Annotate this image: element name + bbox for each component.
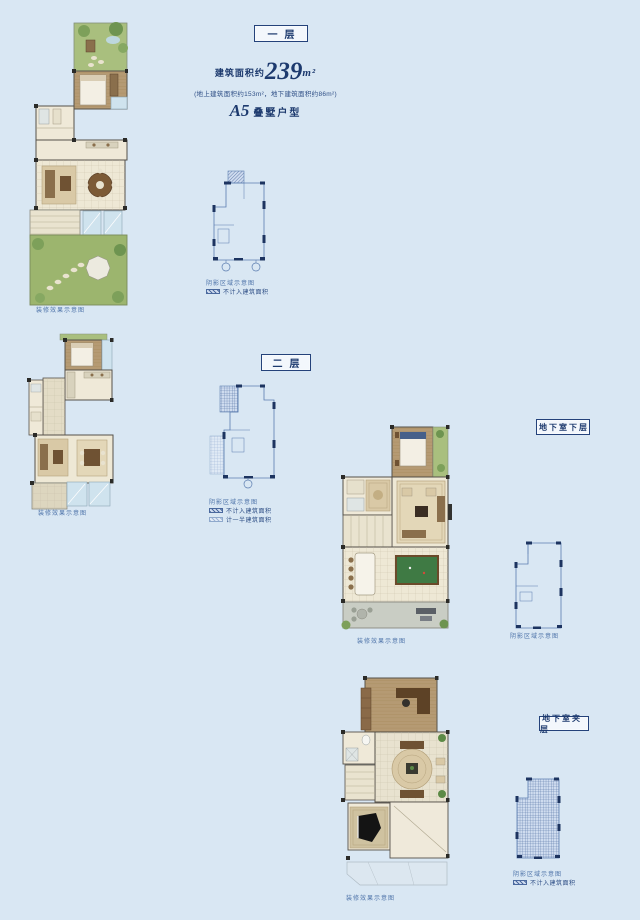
floor1-keyplan-hatch-area <box>228 171 244 183</box>
basement-mezz-keyplan <box>512 776 564 862</box>
basement-mezz-label: 地下室夹层 <box>539 716 589 731</box>
bl-garden-strip <box>433 427 448 477</box>
bm-piano-room <box>348 803 390 850</box>
basement-mezz-legend-no-count-text: 不计入建筑面积 <box>530 878 576 887</box>
unit-model: A5 <box>230 101 250 120</box>
bl-patio <box>342 602 449 630</box>
basement-lower-plan-caption: 装修效果示意图 <box>357 636 406 645</box>
floor1-garden-top <box>74 22 128 71</box>
basement-mezz-legend-no-count: 不计入建筑面积 <box>513 878 576 887</box>
bl-bar-billiards <box>343 547 448 602</box>
floor1-legend-no-count: 不计入建筑面积 <box>206 287 269 296</box>
bm-study <box>361 678 437 732</box>
floor2-plan-caption: 装修效果示意图 <box>38 508 87 517</box>
floor1-label: 一层 <box>254 25 308 42</box>
floor1-plan-caption: 装修效果示意图 <box>36 305 85 314</box>
basement-lower-keyplan-piers <box>515 542 563 630</box>
floor1-keyplan-piers <box>213 182 266 261</box>
floor2-bedroom <box>65 340 102 370</box>
brochure-page: 装修效果示意图 一层 建筑面积约239m² (地上建筑面积约153m²，地下建筑… <box>0 0 640 920</box>
floor1-keyplan <box>204 165 292 275</box>
floor2-living-dining <box>35 435 113 483</box>
floor2-keyplan-hatch-dark <box>220 386 238 412</box>
floor1-keyplan-caption: 阴影区域示意图 <box>206 278 255 287</box>
basement-lower-keyplan-caption: 阴影区域示意图 <box>510 631 559 640</box>
bl-stairs <box>343 515 392 547</box>
floor1-glass-doors <box>83 211 122 235</box>
bl-foyer <box>343 477 392 515</box>
hatch-dark-swatch <box>513 880 527 885</box>
floor2-bay-window <box>102 340 112 370</box>
bm-lower-terrace-outline <box>347 862 447 885</box>
bl-bedroom <box>392 427 433 477</box>
floor2-legend-half-count: 计一半建筑面积 <box>209 515 272 524</box>
area-prefix: 建筑面积约 <box>215 68 265 78</box>
floor1-kitchen <box>36 140 127 160</box>
floor2-label-text: 二层 <box>266 355 307 370</box>
bl-living <box>392 477 452 547</box>
bm-stairs <box>345 765 375 800</box>
unit-type-line: A5叠墅户型 <box>178 101 353 121</box>
floor2-terrace <box>32 482 110 509</box>
hatch-dark-swatch <box>206 289 220 294</box>
floor2-keyplan <box>206 380 291 492</box>
bm-open-area <box>390 802 448 858</box>
area-detail-line: (地上建筑面积约153m²，地下建筑面积约86m²) <box>178 88 353 98</box>
floor2-plan-drawing <box>26 332 118 512</box>
floor1-left-rooms <box>36 106 74 140</box>
floor1-plan-drawing <box>28 18 133 310</box>
area-header: 建筑面积约239m² (地上建筑面积约153m²，地下建筑面积约86m²) A5… <box>178 58 353 121</box>
floor1-terrace-steps <box>30 210 80 238</box>
area-value: 239 <box>265 58 303 85</box>
floor2-left-rooms <box>29 380 43 435</box>
basement-lower-keyplan <box>508 540 568 632</box>
area-unit: m² <box>302 67 316 79</box>
basement-mezz-keyplan-caption: 阴影区域示意图 <box>513 869 562 878</box>
floor1-label-text: 一层 <box>261 26 302 41</box>
area-main-line: 建筑面积约239m² <box>178 58 353 86</box>
floor1-living-dining <box>36 160 125 210</box>
basement-mezz-keyplan-hatched-area <box>517 779 559 858</box>
floor1-balcony-glass <box>111 97 127 109</box>
basement-lower-label: 地下室下层 <box>536 419 590 435</box>
floor1-garden-bottom <box>30 235 127 305</box>
floor2-keyplan-hatch-light <box>210 436 224 474</box>
hatch-light-swatch <box>209 517 223 522</box>
floor2-planter <box>60 334 107 340</box>
basement-mezz-plan-drawing <box>338 670 452 892</box>
floor2-legend-half-count-text: 计一半建筑面积 <box>226 515 272 524</box>
basement-mezz-label-text: 地下室夹层 <box>540 713 588 735</box>
bm-bathroom <box>343 732 375 764</box>
floor2-legend-no-count-text: 不计入建筑面积 <box>226 506 272 515</box>
floor2-kitchen <box>65 370 112 400</box>
hatch-dark-swatch <box>209 508 223 513</box>
floor2-legend-no-count: 不计入建筑面积 <box>209 506 272 515</box>
floor2-label: 二层 <box>261 354 311 371</box>
unit-type-text: 叠墅户型 <box>253 108 301 119</box>
basement-lower-plan-drawing <box>338 418 452 634</box>
floor2-keyplan-caption: 阴影区域示意图 <box>209 497 258 506</box>
basement-lower-label-text: 地下室下层 <box>537 422 589 433</box>
floor2-hall <box>43 378 65 435</box>
basement-mezz-plan-caption: 装修效果示意图 <box>346 893 395 902</box>
floor1-legend-no-count-text: 不计入建筑面积 <box>223 287 269 296</box>
bm-sitting-area <box>375 732 448 802</box>
